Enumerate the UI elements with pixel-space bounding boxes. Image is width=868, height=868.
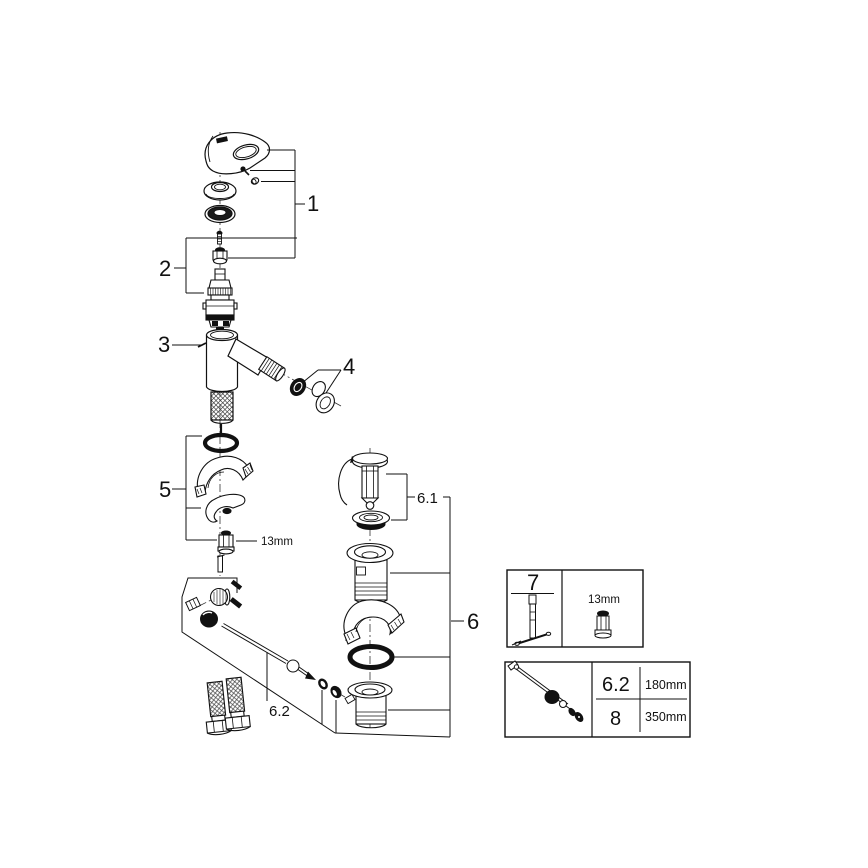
handle-lever [205,133,269,174]
pivot-joint [211,589,230,606]
exploded-parts-diagram: 1 2 3 4 5 6 6.1 6.2 13mm 7 13mm [0,0,868,868]
aerator [287,376,309,399]
drain-o-ring [350,647,392,668]
callout-4: 4 [343,354,355,379]
flex-hoses [202,677,250,736]
pop-up-rod [222,624,317,681]
plug-seal-ring [353,511,390,530]
pivot-nut [186,597,201,610]
callout-6-1: 6.1 [417,490,438,507]
faucet-body [198,330,268,392]
pivot-ball-seal [201,611,218,627]
table-part-6-2: 6.2 [602,674,630,696]
callout-5: 5 [159,477,171,502]
shank-o-ring [205,435,237,451]
clamp-washer [206,494,245,522]
pop-up-plug [339,453,388,509]
tool-wrench-size: 13mm [588,594,620,606]
ball-joint-mousseur [304,379,341,416]
threaded-shank [211,392,233,436]
rod-grommet [329,684,343,699]
table-part-8: 8 [610,708,621,730]
rod-o-ring [318,678,328,689]
callout-lines [172,150,464,737]
cartridge-screw [217,231,223,244]
rod-length-box: 6.2 180mm 8 350mm [505,661,690,737]
drain-stabilizer-plate [344,600,404,644]
waste-flange [347,544,393,604]
escutcheon-seal-ring [205,206,235,223]
cartridge [203,269,237,331]
tool-part-number: 7 [527,570,539,595]
pivot-pin [217,555,225,572]
callout-2: 2 [159,256,171,281]
pivot-plane-outline [182,578,335,733]
stabilizer-plate [195,456,253,497]
drain-body [345,682,392,728]
handle-plug [250,177,260,186]
callout-1: 1 [307,191,319,216]
callout-6-2: 6.2 [269,703,290,720]
tool-info-box: 7 13mm [507,570,643,647]
nut-size-label: 13mm [261,536,293,548]
diagram-canvas: 1 2 3 4 5 6 6.1 6.2 13mm 7 13mm [0,0,868,868]
cartridge-cap-nut [213,248,227,264]
pivot-screw-side [230,597,243,608]
callout-3: 3 [158,332,170,357]
pivot-screw-top [231,580,242,590]
table-length-350: 350mm [645,710,687,724]
table-length-180: 180mm [645,678,687,692]
escutcheon-dome-ring [204,182,236,200]
callout-6: 6 [467,609,479,634]
